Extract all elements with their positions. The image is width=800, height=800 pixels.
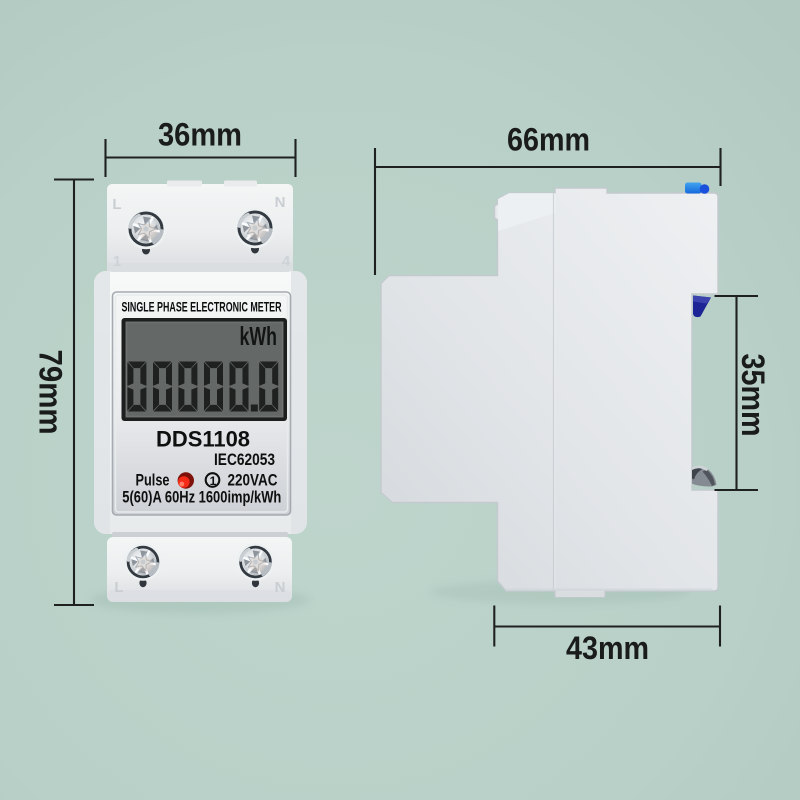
svg-text:SINGLE PHASE ELECTRONIC METER: SINGLE PHASE ELECTRONIC METER — [122, 299, 282, 315]
svg-text:4: 4 — [282, 253, 291, 270]
svg-text:DDS1108: DDS1108 — [156, 427, 250, 452]
svg-text:5(60)A 60Hz 1600imp/kWh: 5(60)A 60Hz 1600imp/kWh — [122, 489, 281, 507]
svg-text:1: 1 — [210, 474, 217, 488]
svg-text:Pulse: Pulse — [136, 472, 170, 490]
svg-text:35mm: 35mm — [735, 354, 771, 437]
svg-text:36mm: 36mm — [158, 117, 242, 153]
svg-text:IEC62053: IEC62053 — [214, 450, 275, 469]
svg-text:L: L — [112, 196, 121, 213]
svg-text:N: N — [275, 579, 286, 596]
svg-text:43mm: 43mm — [566, 630, 649, 666]
svg-text:220VAC: 220VAC — [228, 472, 278, 490]
svg-text:L: L — [114, 579, 123, 596]
svg-text:79mm: 79mm — [33, 350, 69, 435]
svg-text:1: 1 — [113, 253, 121, 270]
svg-text:N: N — [275, 194, 286, 211]
svg-text:66mm: 66mm — [507, 122, 590, 158]
svg-text:kWh: kWh — [240, 321, 278, 351]
